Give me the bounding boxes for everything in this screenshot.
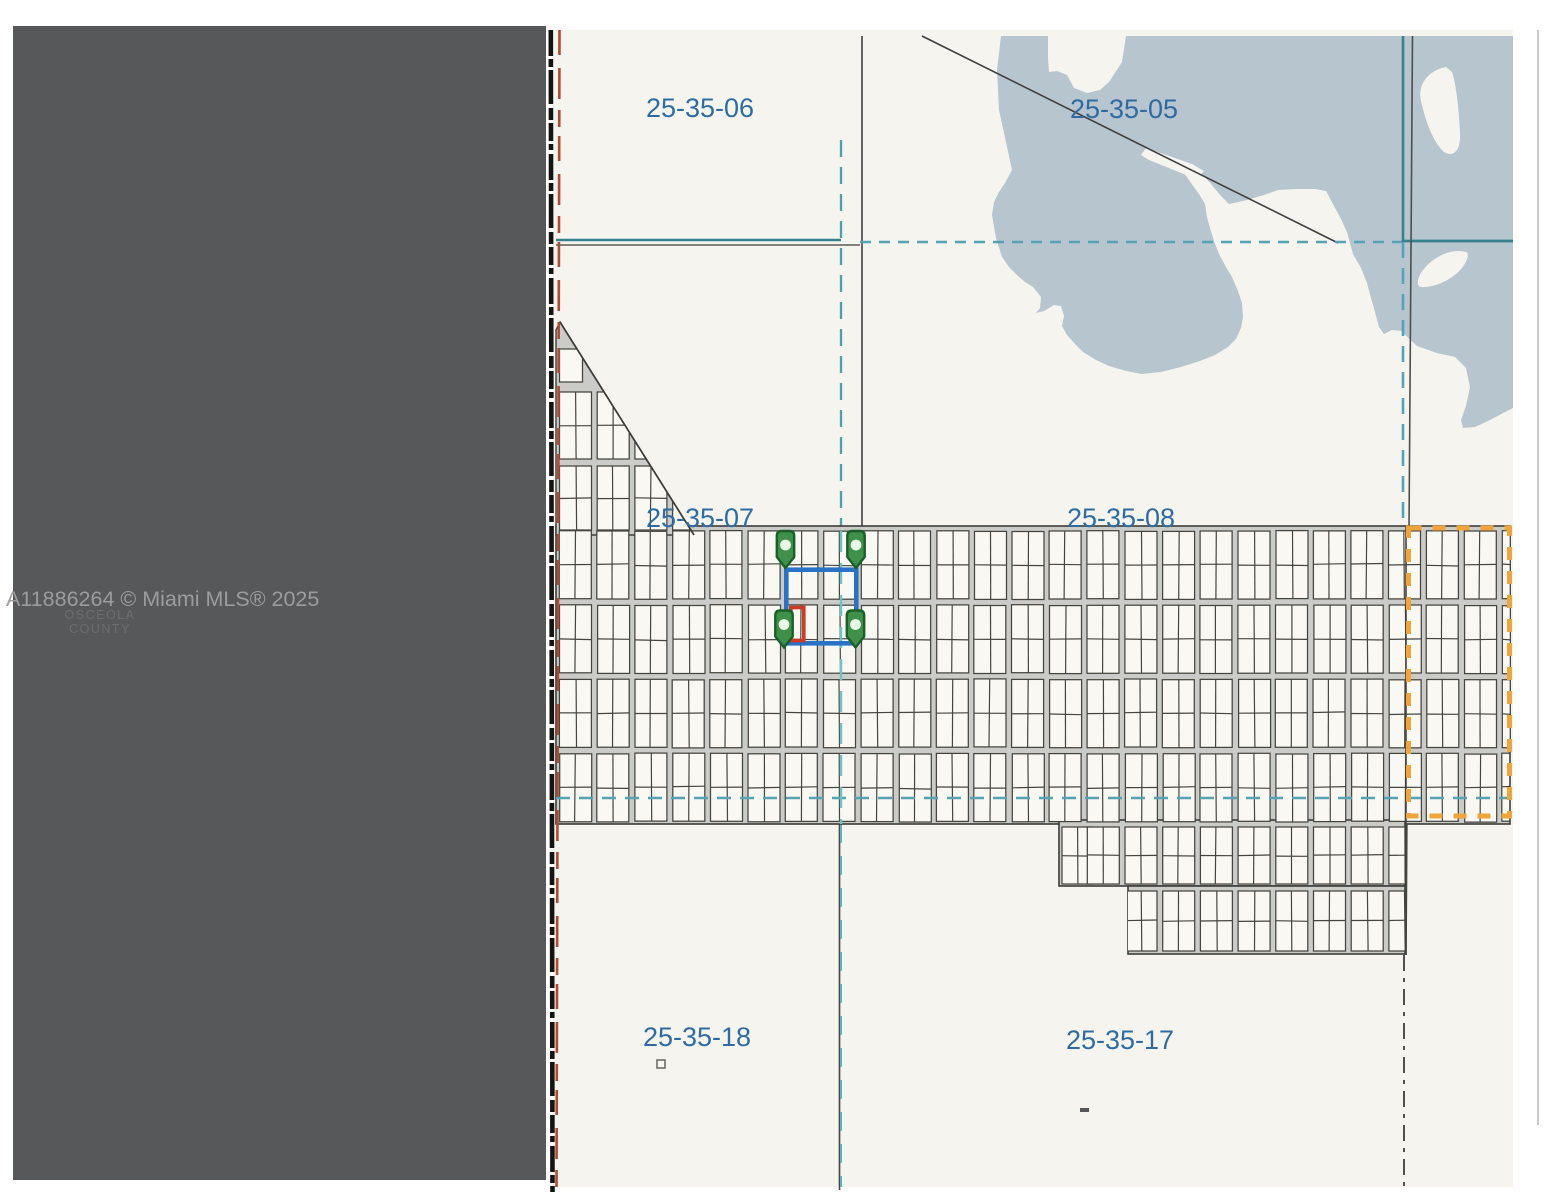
svg-text:25-35-05: 25-35-05 bbox=[1070, 94, 1178, 124]
svg-text:25-35-18: 25-35-18 bbox=[643, 1022, 751, 1052]
svg-text:A11886264 © Miami MLS® 2025: A11886264 © Miami MLS® 2025 bbox=[6, 587, 319, 611]
svg-text:25-35-06: 25-35-06 bbox=[646, 93, 754, 123]
svg-text:25-35-08: 25-35-08 bbox=[1067, 503, 1175, 533]
svg-text:OSCEOLA: OSCEOLA bbox=[65, 608, 136, 622]
svg-text:25-35-17: 25-35-17 bbox=[1066, 1025, 1174, 1055]
svg-text:COUNTY: COUNTY bbox=[69, 622, 131, 636]
svg-text:25-35-07: 25-35-07 bbox=[646, 503, 754, 533]
